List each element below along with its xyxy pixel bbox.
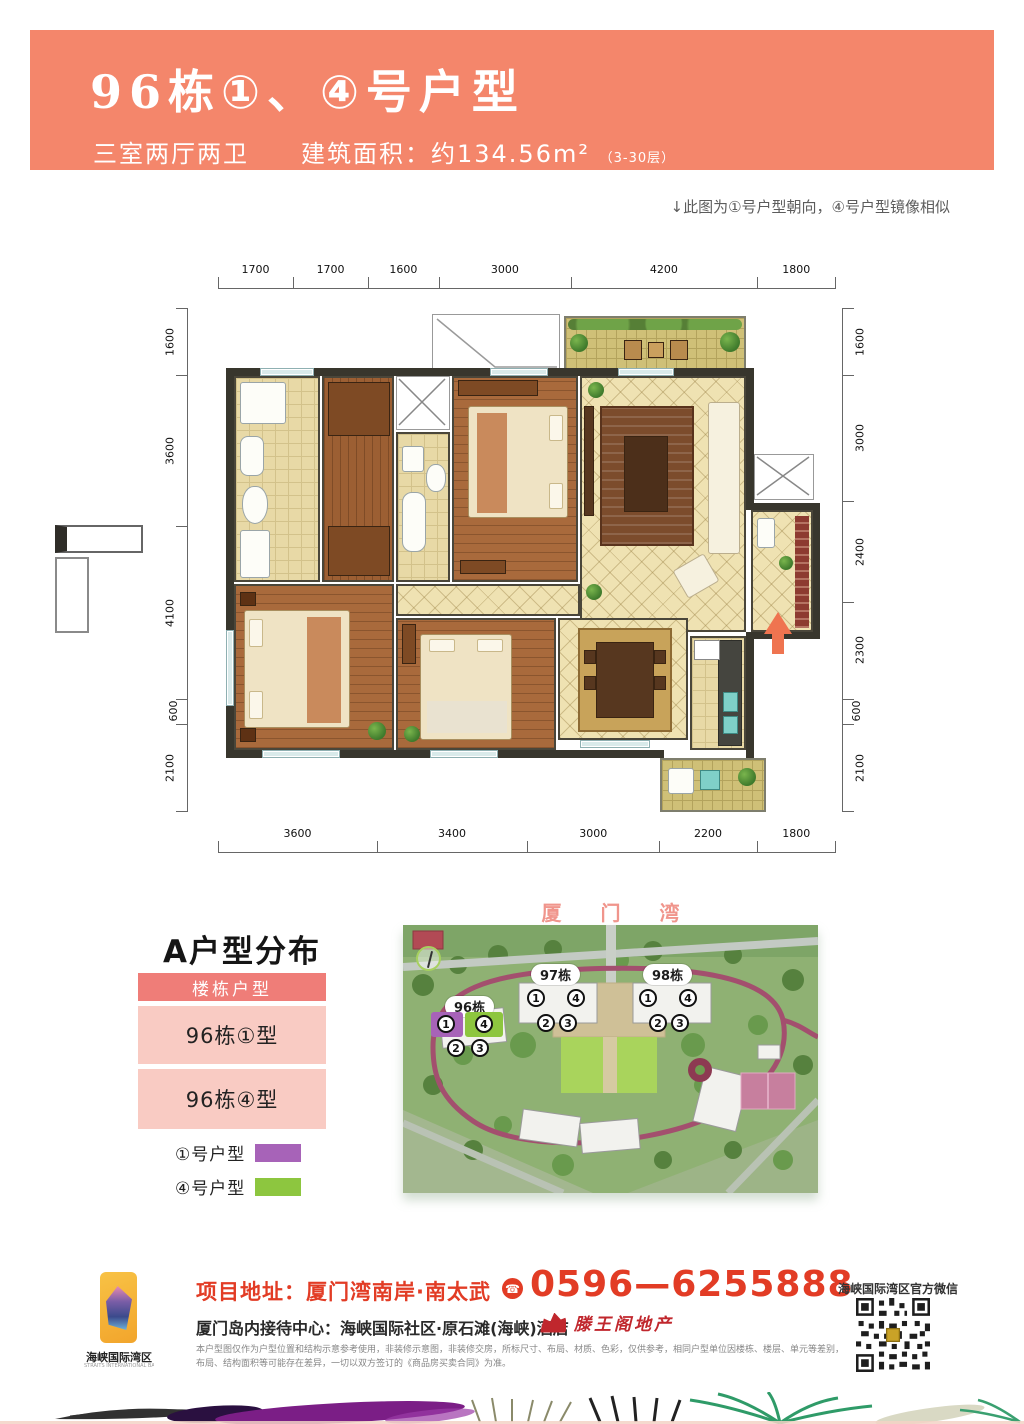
legend-row: ④号户型 xyxy=(175,1174,301,1199)
dim-label: 2200 xyxy=(694,827,722,840)
unit-marker: 3 xyxy=(559,1014,577,1032)
phone-icon: ☎ xyxy=(502,1278,523,1299)
wechat-label: 海峡国际湾区官方微信 xyxy=(838,1280,958,1297)
subtitle-area: 建筑面积：约134.56m² xyxy=(301,140,590,168)
adjacent-wall-stub xyxy=(55,525,143,553)
living-room xyxy=(580,376,746,632)
table-row: 96栋④型 xyxy=(138,1069,326,1129)
dim-label: 2100 xyxy=(164,754,177,782)
header-banner: 96栋①、④号户型 三室两厅两卫建筑面积：约134.56m² （3-30层） xyxy=(30,30,994,170)
phone-number: 0596—6255888 xyxy=(530,1264,854,1305)
dim-label: 3600 xyxy=(283,827,311,840)
dim-label: 1700 xyxy=(242,263,270,276)
unit-legend: ①号户型 ④号户型 xyxy=(175,1140,301,1208)
legend-label: ①号户型 xyxy=(175,1140,245,1165)
distribution-table: 楼栋户型 96栋①型 96栋④型 xyxy=(138,973,326,1129)
legend-row: ①号户型 xyxy=(175,1140,301,1165)
phone-row: ☎ 0596—6255888 xyxy=(502,1264,854,1305)
sitemap-title: 厦 门 湾 xyxy=(403,897,818,926)
sitemap: 96栋 1 4 2 3 97栋 1 4 2 3 98栋 1 4 2 3 xyxy=(403,925,818,1193)
unit4-color-swatch xyxy=(255,1178,301,1196)
floorplan-block: 1700 1700 1600 3000 4200 1800 3600 3400 … xyxy=(140,253,888,875)
master-bathroom xyxy=(234,376,320,582)
dim-label: 2300 xyxy=(854,636,867,664)
dim-label: 1600 xyxy=(389,263,417,276)
walk-in-closet xyxy=(322,376,394,582)
orientation-note: ↓此图为①号户型朝向，④号户型镜像相似 xyxy=(620,196,950,217)
dim-label: 3600 xyxy=(164,437,177,465)
unit-marker: 3 xyxy=(671,1014,689,1032)
unit-marker: 3 xyxy=(471,1039,489,1057)
terrace xyxy=(564,316,746,372)
unit-marker: 4 xyxy=(567,989,585,1007)
unit-marker: 4 xyxy=(679,989,697,1007)
building-label-98: 98栋 xyxy=(643,964,692,985)
subtitle-floors: （3-30层） xyxy=(600,151,676,166)
brand-logo xyxy=(100,1272,137,1343)
unit-marker: 4 xyxy=(475,1015,493,1033)
distribution-title: A户型分布 xyxy=(163,926,321,971)
floorplan-drawing xyxy=(198,306,838,816)
project-address: 项目地址：厦门湾南岸·南太武 xyxy=(196,1276,491,1306)
brand-logo-graphic xyxy=(106,1286,132,1330)
reception-info: 厦门岛内接待中心：海峡国际社区·原石滩(海峡)酒店 xyxy=(196,1315,569,1339)
page-title: 96栋①、④号户型 xyxy=(90,56,525,122)
dim-label: 3000 xyxy=(579,827,607,840)
dim-label: 3000 xyxy=(491,263,519,276)
unit-marker: 1 xyxy=(527,989,545,1007)
unit-marker: 2 xyxy=(447,1039,465,1057)
dimension-line-bottom: 3600 3400 3000 2200 1800 xyxy=(218,823,836,853)
dim-label: 2400 xyxy=(854,538,867,566)
page-subtitle: 三室两厅两卫建筑面积：约134.56m² （3-30层） xyxy=(93,134,675,169)
dim-label: 4200 xyxy=(650,263,678,276)
hallway xyxy=(396,584,580,616)
dim-label: 1600 xyxy=(854,328,867,356)
dimension-line-left: 1600 3600 4100 600 2100 xyxy=(154,308,188,812)
dim-label: 3400 xyxy=(438,827,466,840)
bedroom-3 xyxy=(396,618,556,750)
unit1-color-swatch xyxy=(255,1144,301,1162)
ac-x xyxy=(755,455,811,497)
developer-name: 滕王阁地产 xyxy=(574,1310,674,1335)
table-header: 楼栋户型 xyxy=(138,973,326,1001)
dimension-line-right: 1600 3000 2400 2300 600 2100 xyxy=(842,308,876,812)
bedroom-2 xyxy=(452,376,578,582)
subtitle-rooms: 三室两厅两卫 xyxy=(93,140,249,168)
dining-room xyxy=(558,618,688,740)
dimension-line-top: 1700 1700 1600 3000 4200 1800 xyxy=(218,259,836,289)
qr-code-graphic xyxy=(856,1298,930,1372)
unit-marker: 2 xyxy=(537,1014,555,1032)
kitchen xyxy=(690,636,746,750)
poster-page: 96栋①、④号户型 三室两厅两卫建筑面积：约134.56m² （3-30层） ↓… xyxy=(0,0,1024,1424)
developer-logo-icon xyxy=(540,1313,566,1333)
master-bedroom xyxy=(234,584,394,750)
dim-label: 3000 xyxy=(854,424,867,452)
service-balcony xyxy=(660,758,766,812)
dim-label: 4100 xyxy=(164,599,177,627)
dim-label: 1700 xyxy=(317,263,345,276)
dim-label: 2100 xyxy=(854,754,867,782)
bathroom-2 xyxy=(396,432,450,582)
wechat-qr-code xyxy=(856,1298,930,1372)
adjacent-wall-stub xyxy=(55,557,89,633)
unit-marker: 1 xyxy=(639,989,657,1007)
developer-row: 滕王阁地产 xyxy=(540,1310,674,1335)
closet-x xyxy=(397,377,447,427)
dim-label: 600 xyxy=(167,701,180,722)
disclaimer-text: 本户型图仅作为户型位置和结构示意参考使用，非装修示意图，非装修交房，所标尺寸、布… xyxy=(196,1344,848,1372)
dim-label: 600 xyxy=(850,701,863,722)
building-label-97: 97栋 xyxy=(531,964,580,985)
utility-closet xyxy=(396,376,450,430)
brand-logo-subtitle: STRAITS INTERNATIONAL BAY AREA xyxy=(84,1363,154,1369)
entrance-arrow xyxy=(764,612,792,656)
table-row: 96栋①型 xyxy=(138,1006,326,1064)
dim-label: 1800 xyxy=(782,263,810,276)
unit-marker: 2 xyxy=(649,1014,667,1032)
decorative-leaf-strip xyxy=(0,1392,1024,1424)
sitemap-background xyxy=(403,925,818,1193)
ac-platform xyxy=(754,454,814,500)
roof-outline-lines xyxy=(433,315,561,375)
leaf-strip-graphic xyxy=(0,1392,1024,1424)
compass-icon xyxy=(416,946,441,971)
unit-marker: 1 xyxy=(437,1015,455,1033)
dim-label: 1800 xyxy=(782,827,810,840)
roof-outline xyxy=(432,314,560,374)
dim-label: 1600 xyxy=(164,328,177,356)
legend-label: ④号户型 xyxy=(175,1174,245,1199)
